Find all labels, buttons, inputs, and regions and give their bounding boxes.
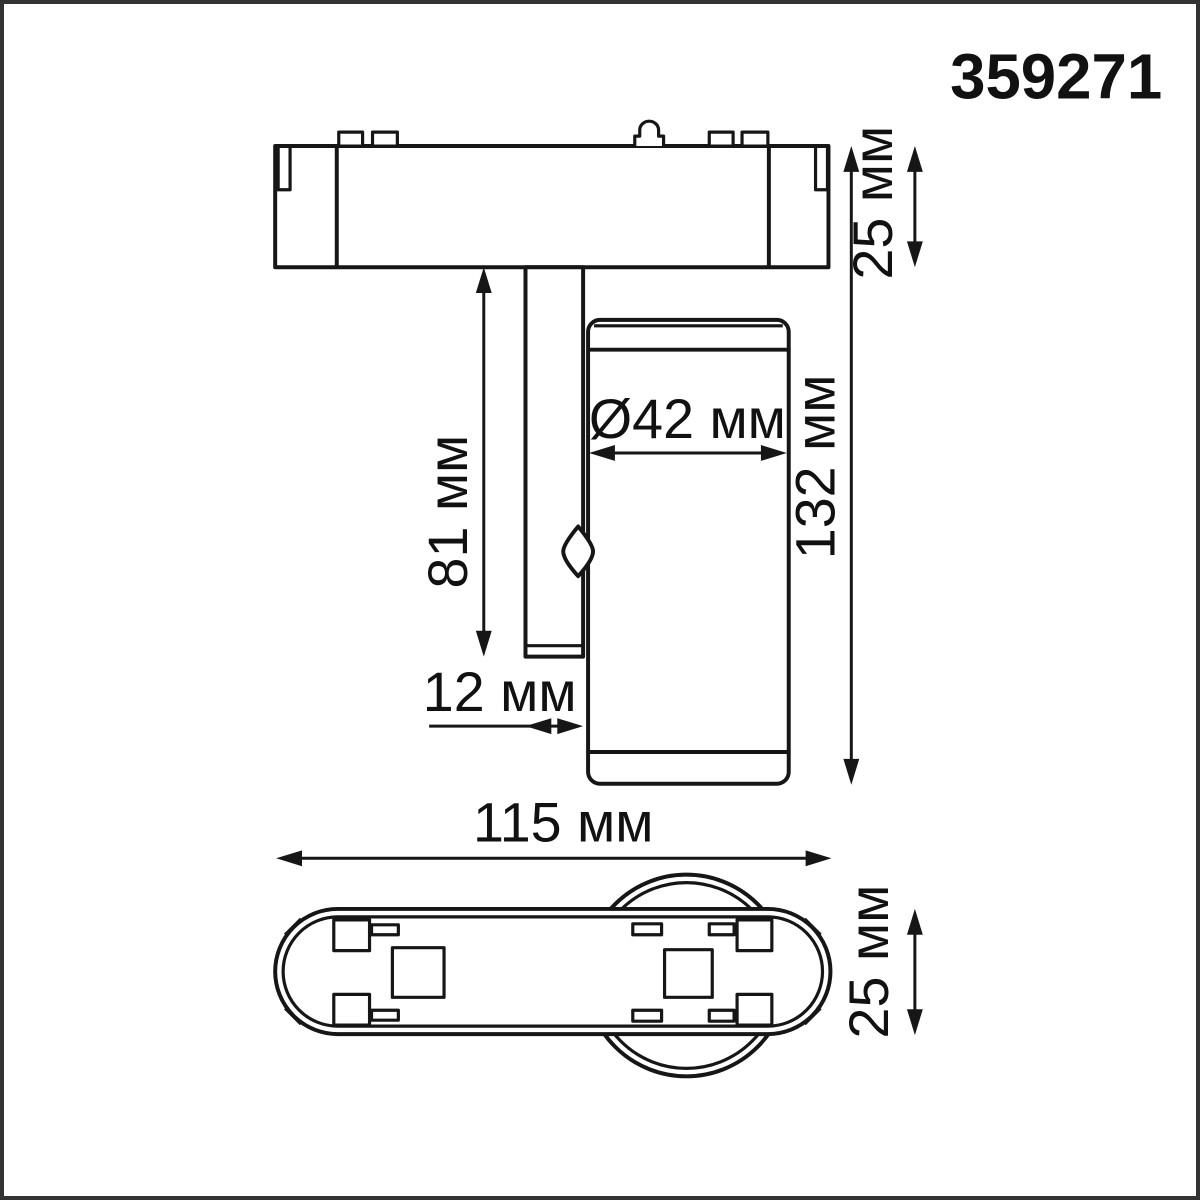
dimension-head-diameter: Ø42 мм (589, 388, 787, 461)
dimension-stem-length: 81 мм (417, 267, 492, 656)
adapter-tab-3 (709, 132, 733, 146)
stem-length-label: 81 мм (417, 435, 479, 589)
arrowhead-up-25-bottom (907, 909, 923, 935)
arrowhead-down-132 (843, 759, 859, 785)
dimension-adapter-width: 25 мм (838, 885, 923, 1039)
track-adapter-body (275, 146, 828, 267)
adapter-tab-4 (742, 132, 768, 146)
adapter-height-label: 25 мм (842, 126, 904, 280)
arrowhead-down-81 (476, 631, 492, 657)
product-article-number: 359271 (950, 41, 1162, 112)
adapter-lock-button (635, 121, 664, 146)
arrowhead-left-115 (276, 850, 302, 866)
adapter-length-label: 115 мм (473, 791, 654, 853)
head-diameter-label: Ø42 мм (589, 388, 786, 450)
dimension-stem-width: 12 мм (423, 661, 583, 734)
stem-arm (526, 267, 584, 656)
bottom-view: 115 мм 25 мм (275, 791, 923, 1076)
arrowhead-right-115 (806, 850, 832, 866)
dimension-adapter-length: 115 мм (276, 791, 831, 866)
arrowhead-up-81 (476, 267, 492, 293)
total-height-label: 132 мм (784, 375, 846, 560)
adapter-outline-outer (275, 909, 830, 1034)
arrowhead-down-25-bottom (907, 1009, 923, 1035)
stem-width-label: 12 мм (423, 661, 577, 723)
adapter-width-label: 25 мм (838, 885, 900, 1039)
side-view: 81 мм Ø42 мм 132 мм 25 мм 12 (275, 121, 923, 785)
dimension-adapter-height: 25 мм (842, 126, 923, 280)
drawing-page: 81 мм Ø42 мм 132 мм 25 мм 12 (0, 0, 1200, 1200)
adapter-tab-1 (339, 132, 363, 146)
arrowhead-down-25-top (907, 241, 923, 267)
adapter-tab-2 (373, 132, 398, 146)
arrowhead-up-25-top (907, 146, 923, 172)
technical-drawing-canvas: 81 мм Ø42 мм 132 мм 25 мм 12 (4, 4, 1196, 1196)
